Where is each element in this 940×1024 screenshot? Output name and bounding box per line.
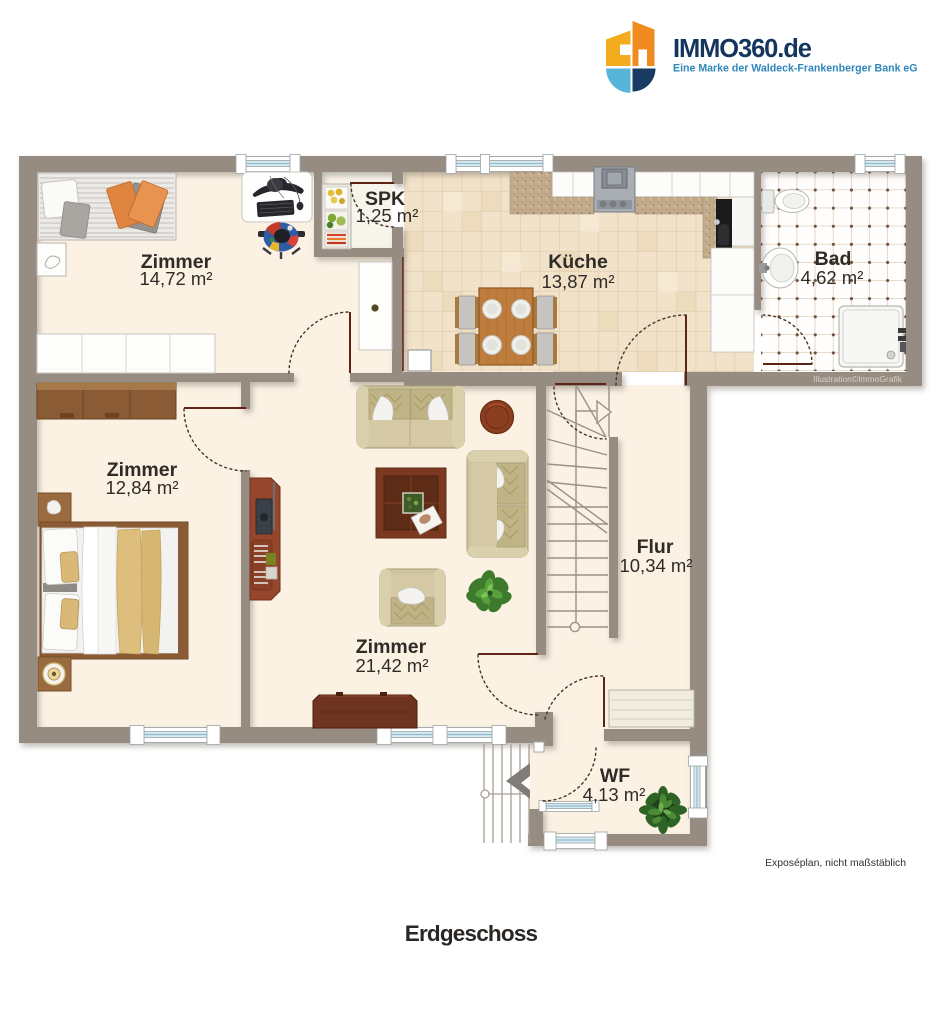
svg-text:10,34 m²: 10,34 m²: [619, 555, 692, 576]
svg-text:21,42 m²: 21,42 m²: [355, 655, 428, 676]
svg-text:4,62 m²: 4,62 m²: [801, 267, 864, 288]
svg-text:12,84 m²: 12,84 m²: [105, 477, 178, 498]
svg-text:IMMO360.de: IMMO360.de: [673, 35, 812, 63]
svg-text:Eine Marke der Waldeck-Franken: Eine Marke der Waldeck-Frankenberger Ban…: [673, 63, 918, 75]
svg-text:Illustration©ImmoGrafik: Illustration©ImmoGrafik: [813, 374, 903, 384]
svg-text:1,25 m²: 1,25 m²: [356, 205, 419, 226]
svg-text:13,87 m²: 13,87 m²: [541, 271, 614, 292]
svg-text:Erdgeschoss: Erdgeschoss: [405, 921, 538, 946]
svg-text:Exposéplan, nicht maßstäblich: Exposéplan, nicht maßstäblich: [765, 858, 906, 869]
svg-text:14,72 m²: 14,72 m²: [139, 268, 212, 289]
svg-text:4,13 m²: 4,13 m²: [583, 784, 646, 805]
svg-text:Küche: Küche: [548, 251, 608, 273]
